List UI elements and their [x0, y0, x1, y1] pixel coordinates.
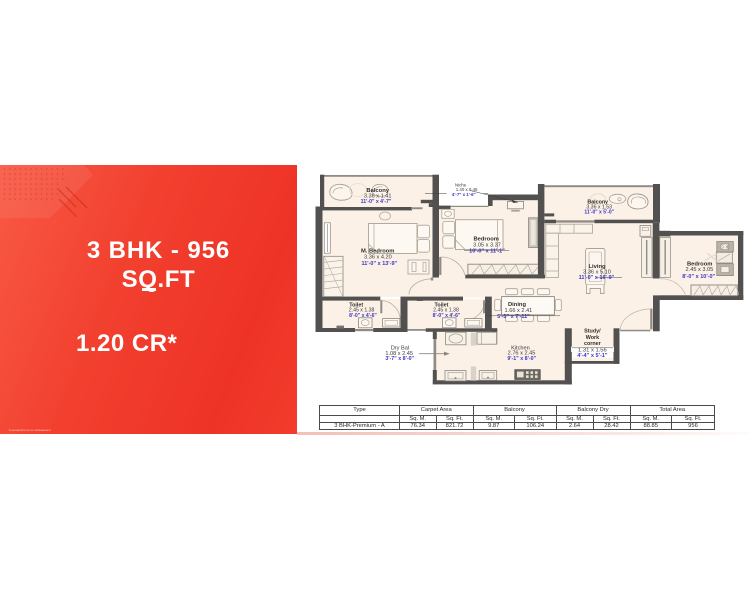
svg-text:4'-4" x 5'-1": 4'-4" x 5'-1"	[577, 353, 608, 359]
svg-text:11'-0" x 16'-9": 11'-0" x 16'-9"	[579, 275, 615, 281]
svg-text:3'-7" x 8'-0": 3'-7" x 8'-0"	[385, 356, 414, 362]
svg-text:11'-0" x 4'-7": 11'-0" x 4'-7"	[361, 199, 392, 205]
svg-text:Study/: Study/	[584, 328, 601, 334]
svg-text:8'-0" x 10'-0": 8'-0" x 10'-0"	[682, 274, 715, 280]
svg-text:11'-0" x 5'-0": 11'-0" x 5'-0"	[584, 209, 614, 215]
svg-text:10'-0" x 11'-1": 10'-0" x 11'-1"	[469, 249, 505, 255]
svg-text:9'-1" x 8'-0": 9'-1" x 8'-0"	[507, 356, 536, 362]
svg-text:3.36 x 4.20: 3.36 x 4.20	[364, 254, 392, 260]
svg-text:4'-7" x 1'-6": 4'-7" x 1'-6"	[452, 192, 476, 197]
svg-text:8'-0" x 4'-6": 8'-0" x 4'-6"	[433, 313, 461, 319]
svg-text:5'-5" x 7'-11": 5'-5" x 7'-11"	[497, 314, 530, 320]
svg-text:Work: Work	[586, 335, 599, 341]
svg-text:corner: corner	[584, 341, 602, 347]
svg-text:2.45 x 3.05: 2.45 x 3.05	[686, 267, 714, 273]
svg-text:11'-0" x 13'-9": 11'-0" x 13'-9"	[361, 261, 397, 267]
svg-text:8'-0" x 4'-6": 8'-0" x 4'-6"	[349, 313, 377, 319]
